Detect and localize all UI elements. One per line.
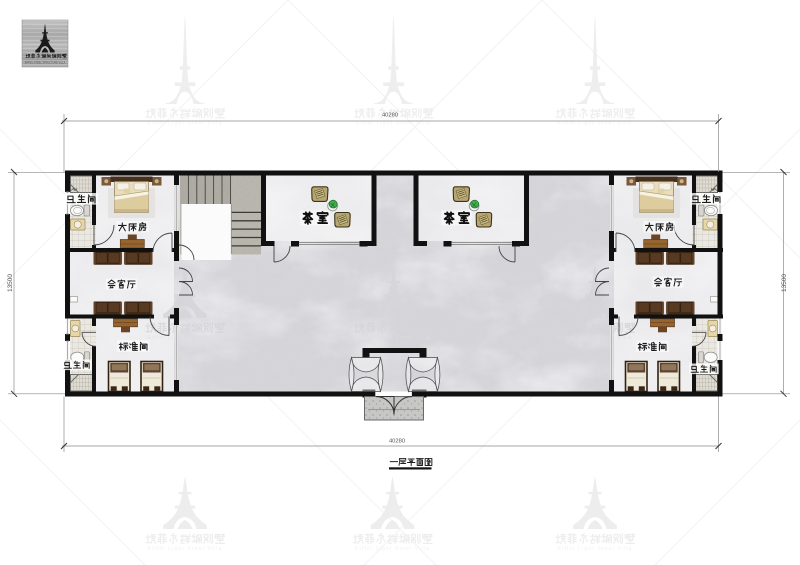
svg-text:Eiffel Light Steel Villa: Eiffel Light Steel Villa (148, 121, 223, 127)
svg-text:40280: 40280 (389, 439, 405, 445)
svg-text:Eiffel Light Steel Villa: Eiffel Light Steel Villa (148, 335, 223, 341)
svg-text:40280: 40280 (382, 113, 398, 119)
svg-text:Eiffel Light Steel Villa: Eiffel Light Steel Villa (558, 546, 633, 552)
svg-text:Eiffel Light Steel Villa: Eiffel Light Steel Villa (356, 121, 431, 127)
svg-text:13500: 13500 (7, 274, 14, 292)
svg-text:Eiffel Light Steel Villa: Eiffel Light Steel Villa (148, 546, 223, 552)
svg-text:Eiffel Light Steel Villa: Eiffel Light Steel Villa (355, 546, 430, 552)
svg-text:Eiffel Light Steel Villa: Eiffel Light Steel Villa (558, 335, 633, 341)
svg-text:13500: 13500 (781, 274, 788, 292)
svg-text:EIFFEL STEEL STRUCTURE VILLA: EIFFEL STEEL STRUCTURE VILLA (25, 62, 66, 65)
svg-text:Eiffel Light Steel Villa: Eiffel Light Steel Villa (558, 121, 633, 127)
svg-text:Eiffel Light Steel Villa: Eiffel Light Steel Villa (356, 335, 431, 341)
